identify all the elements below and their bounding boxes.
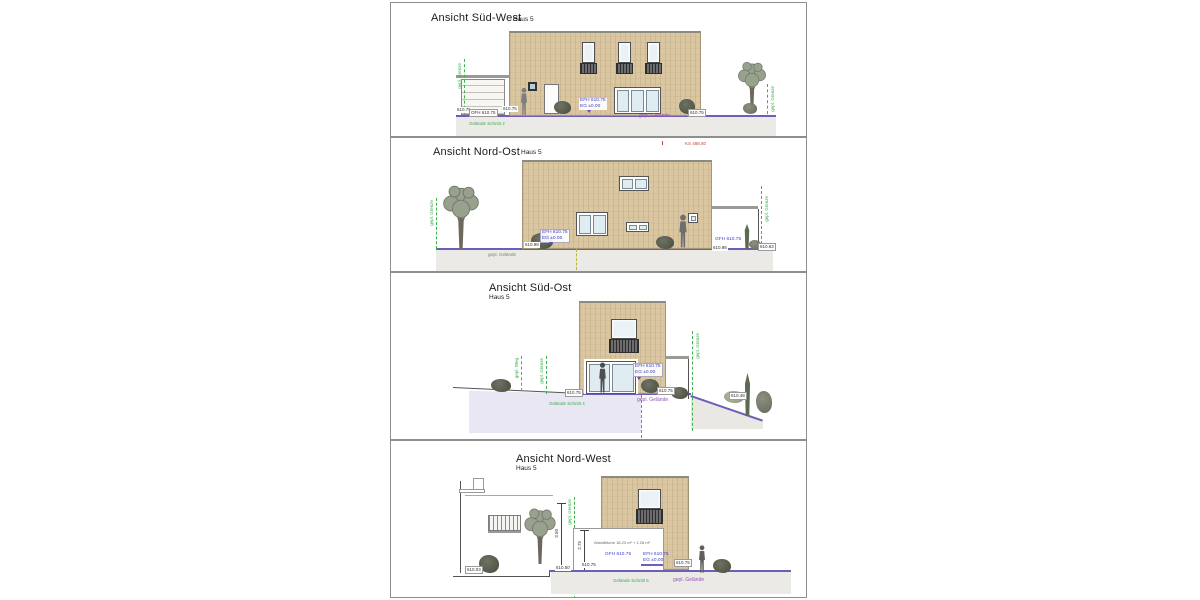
boundary-label: gepl. Grenze: [695, 333, 700, 359]
panel-nord-west: Ansicht Nord-West Haus 5 gepl. Grenze: [390, 440, 807, 598]
glass-pane: [646, 90, 659, 112]
person-figure: [677, 213, 689, 249]
dimension-line: [561, 503, 562, 571]
haus-label: Haus 5: [489, 294, 510, 301]
window-glass: [582, 42, 595, 63]
level-marker: [637, 377, 641, 380]
bush-icon: [743, 103, 757, 114]
neighbor-roof-line: [465, 495, 553, 496]
ks-label: KS 488.50: [685, 141, 706, 146]
wall-top-bar: [712, 206, 758, 209]
level-label: 610.75: [581, 562, 597, 568]
haus-label: Haus 5: [513, 16, 534, 23]
eg-label: EG ±0.00: [635, 370, 661, 376]
window-glass: [647, 42, 660, 63]
level-label: 610.75: [502, 106, 518, 112]
boundary-line: [521, 356, 522, 391]
terrain-strip: [456, 116, 776, 136]
glass-pane: [639, 225, 647, 230]
boundary-label: gepl. Grenze: [457, 63, 462, 89]
schnitt-label: Gelände Schnitt 2: [469, 121, 505, 126]
bush-icon: [554, 101, 571, 114]
terrain-fill: [469, 389, 641, 433]
glass-pane: [629, 225, 637, 230]
level-label: 610.75: [674, 559, 692, 567]
gelaende-label: gepl. Gelände: [639, 113, 670, 119]
window-french: [582, 42, 595, 74]
ofh-label: OFH 610.75: [469, 109, 498, 117]
wall-lamp-icon: [528, 82, 537, 91]
dimension-tick: [557, 503, 566, 504]
efh-eg-label: EFH 610.75 EG ±0.00: [579, 98, 607, 110]
level-label: 610.75: [688, 109, 706, 117]
weg-label: gepl. Weg: [514, 358, 519, 378]
boundary-line: [574, 497, 575, 528]
panel-title: Ansicht Nord-Ost: [433, 146, 520, 158]
window-pair: [619, 176, 649, 191]
panel-title: Ansicht Süd-Ost: [489, 282, 571, 294]
boundary-line: [546, 356, 547, 394]
ground-line: [549, 570, 791, 572]
level-label: 610.98: [524, 242, 540, 248]
neighbor-balcony-base: [488, 531, 521, 533]
dimension-tick: [580, 530, 589, 531]
window-french: [618, 42, 631, 74]
section-line: [576, 249, 577, 270]
level-label: 610.98: [712, 245, 728, 251]
person-figure: [695, 545, 709, 573]
level-label: 610.75: [657, 387, 675, 395]
boundary-label: gepl. Grenze: [429, 200, 434, 226]
wall-edge: [688, 359, 689, 399]
level-marker: [641, 564, 663, 566]
wall-top-bar: [666, 356, 689, 359]
efh-eg-label: EFH 610.75 EG ±0.00: [633, 363, 663, 377]
dimension-label: 2.75: [577, 541, 582, 550]
boundary-line: [767, 84, 768, 114]
gelaende-label: gepl. Gelände: [488, 252, 516, 257]
window-glass: [618, 42, 631, 63]
balcony-railing: [580, 63, 597, 74]
eg-label: EG ±0.00: [542, 236, 568, 242]
elevation-sheet: Ansicht Süd-West Haus 5: [390, 2, 807, 598]
level-label: 610.48: [729, 392, 747, 400]
efh-eg-label: EFH 610.75 EG ±0.00: [642, 552, 670, 564]
window-glass: [638, 489, 661, 509]
boundary-label: gepl. Grenze: [770, 86, 775, 112]
panel-title: Ansicht Süd-West: [431, 12, 521, 24]
glass-pane: [691, 216, 696, 221]
terrain-strip: [551, 572, 791, 594]
balcony-railing: [616, 63, 633, 74]
bush-icon: [713, 559, 731, 573]
level-label: 610.50: [555, 565, 571, 571]
boundary-line: [692, 331, 693, 431]
boundary-line: [436, 198, 437, 249]
window-french: [647, 42, 660, 74]
bush-icon: [491, 379, 511, 392]
window-french: [611, 319, 637, 353]
window-small: [688, 213, 698, 223]
window-small-pair: [626, 222, 649, 232]
boundary-label: gepl. Grenze: [764, 196, 769, 222]
level-label: 610.75: [565, 389, 583, 397]
person-figure: [597, 362, 608, 393]
gfh-label: GFH 610.75: [604, 552, 632, 558]
panel-nord-ost: Ansicht Nord-Ost Haus 5 KS 488.50: [390, 137, 807, 272]
bush-icon: [756, 391, 772, 413]
level-label: 610.63: [758, 243, 776, 251]
neighbor-roof-ledge: [459, 489, 485, 493]
glass-pane: [635, 179, 647, 189]
sliding-door: [586, 361, 636, 394]
boundary-label: gepl. Grenze: [539, 358, 544, 384]
eg-label: EG ±0.00: [580, 104, 606, 110]
gelaende-label: gepl. Gelände: [637, 397, 668, 403]
glass-pane: [593, 215, 606, 234]
efh-eg-label: EFH 610.75 EG ±0.00: [540, 229, 570, 243]
boundary-label: gepl. Grenze: [567, 499, 572, 525]
window-french: [638, 489, 661, 524]
glass-pane: [579, 215, 592, 234]
glass-pane: [631, 90, 644, 112]
dimension-label: 3.50: [554, 529, 559, 538]
glass-pane: [617, 90, 630, 112]
gfh-label: GFH 610.75: [714, 237, 742, 243]
boundary-line: [464, 59, 465, 114]
ground-line-left: [453, 576, 549, 577]
wall-area-label: Wandfläche 18.23 m² + 1.26 m²: [594, 540, 650, 545]
tree-icon: [439, 184, 483, 249]
gelaende-label: gepl. Gelände: [673, 577, 704, 583]
neighbor-balcony-railing: [488, 515, 521, 531]
terrain-strip: [436, 249, 773, 271]
window-glass: [611, 319, 637, 339]
haus-label: Haus 5: [516, 465, 537, 472]
schnitt-label: Gelände Schnitt 5: [613, 578, 649, 583]
schnitt-label: Gelände Schnitt 4: [549, 401, 585, 406]
neighbor-wall-edge: [460, 481, 461, 573]
glass-pane: [622, 179, 634, 189]
boundary-line: [761, 186, 762, 249]
window-double: [576, 212, 608, 236]
bush-icon: [656, 236, 674, 249]
level-marker: [587, 110, 591, 113]
person-figure: [519, 87, 529, 116]
balcony-railing: [609, 339, 639, 353]
level-marker: [549, 242, 553, 245]
balcony-railing: [636, 509, 663, 524]
panel-sued-west: Ansicht Süd-West Haus 5: [390, 2, 807, 137]
panel-sued-ost: Ansicht Süd-Ost Haus 5: [390, 272, 807, 440]
level-label: 610.03: [465, 566, 483, 574]
balcony-railing: [645, 63, 662, 74]
panel-title: Ansicht Nord-West: [516, 453, 611, 465]
haus-label: Haus 5: [521, 149, 542, 156]
survey-tick: [662, 141, 663, 145]
glass-pane: [612, 364, 634, 392]
sliding-door: [614, 87, 661, 114]
